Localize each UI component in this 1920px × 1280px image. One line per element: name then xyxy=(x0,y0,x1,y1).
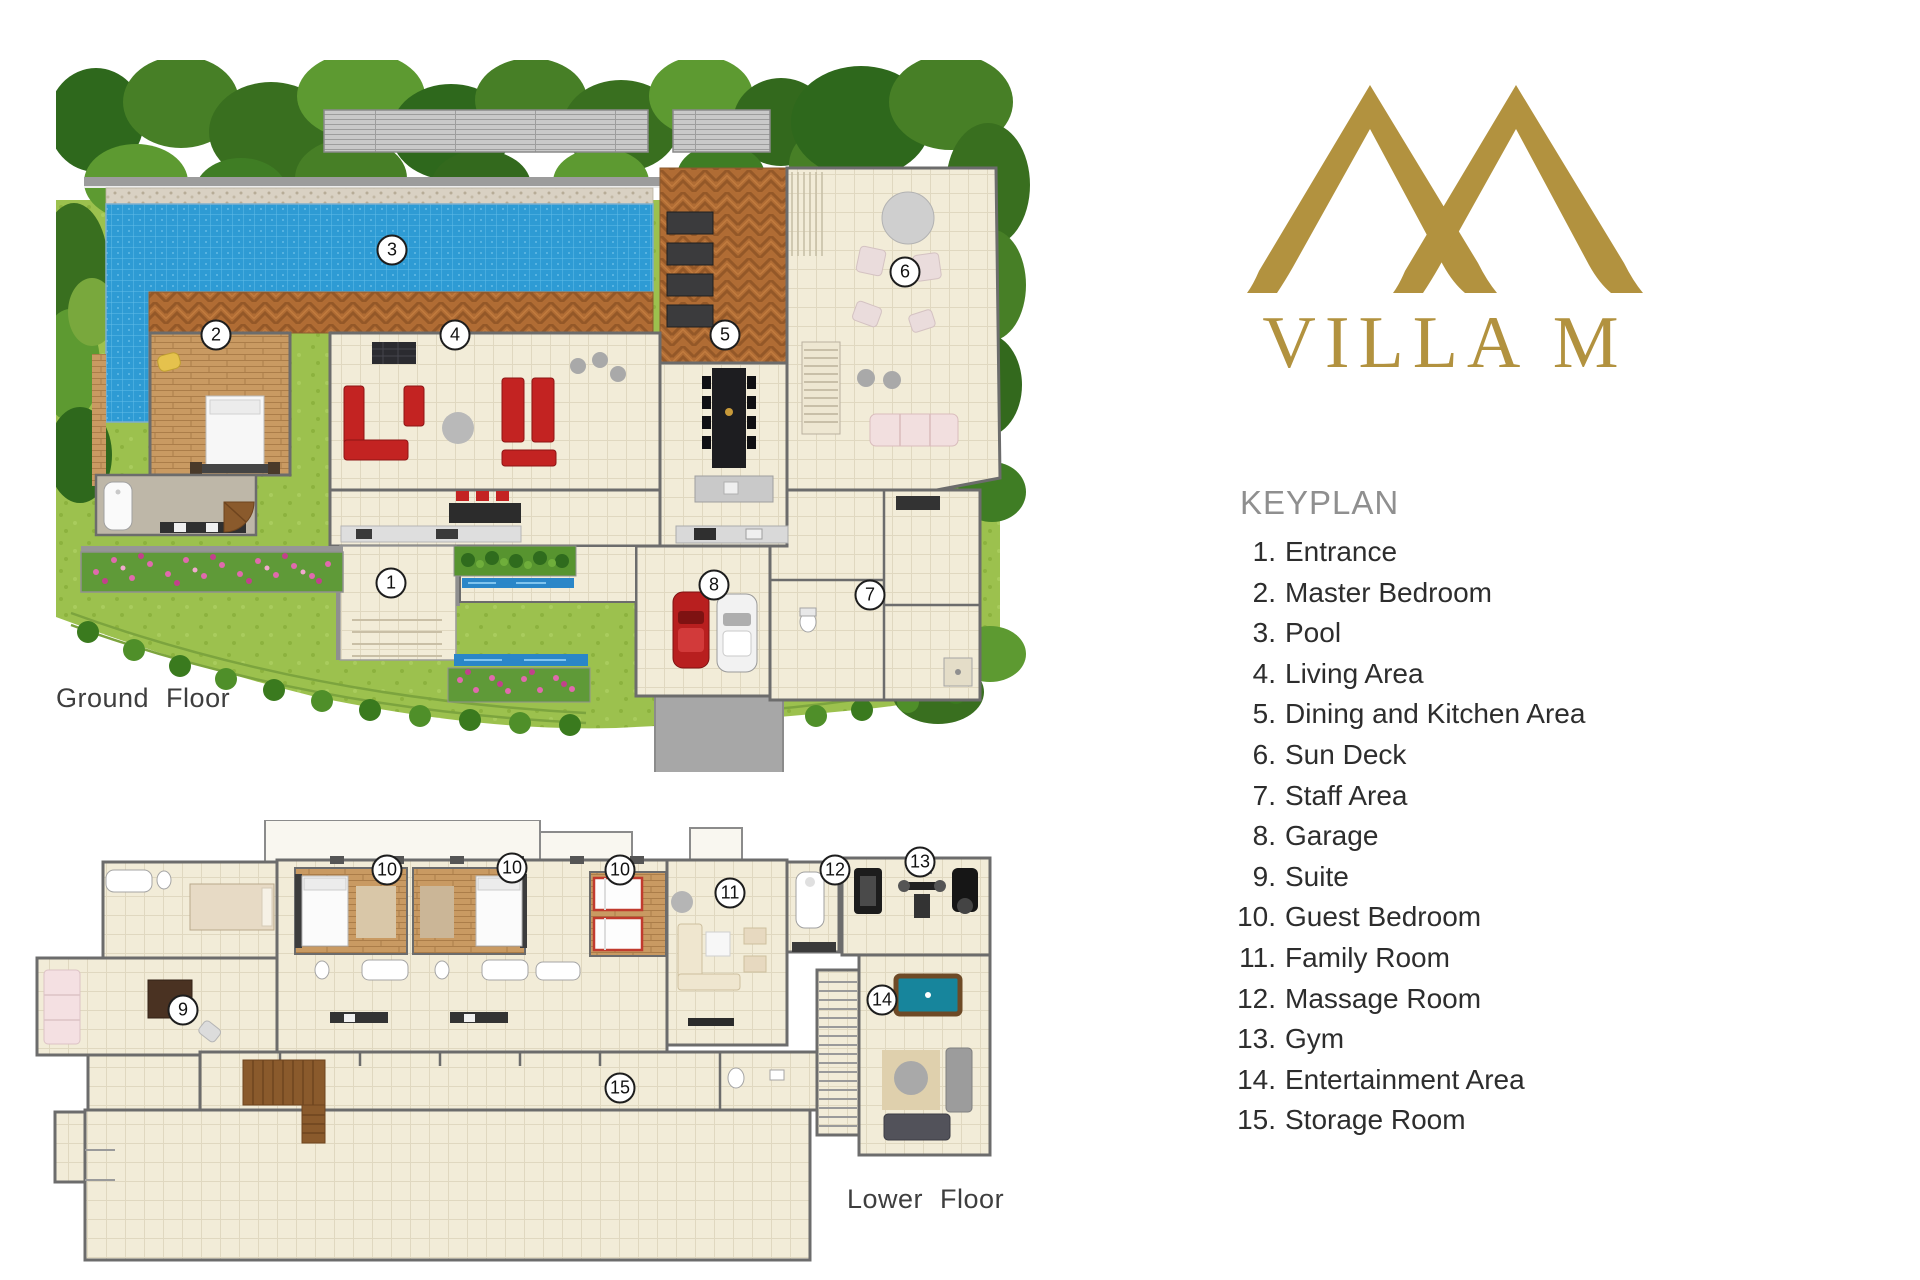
lower-floor-label: Lower Floor xyxy=(847,1184,1004,1215)
suite-sofa xyxy=(44,970,80,1044)
keyplan-item: 14.Entertainment Area xyxy=(1228,1060,1708,1101)
page: Ground Floor Lower Floor 123456789101010… xyxy=(0,0,1920,1280)
louvre-roof xyxy=(673,110,770,152)
keyplan-item-number: 2. xyxy=(1228,573,1276,614)
keyplan-item-label: Pool xyxy=(1285,613,1341,654)
room-marker-3: 3 xyxy=(377,235,408,266)
room-marker-10: 10 xyxy=(497,853,528,884)
keyplan-item: 5.Dining and Kitchen Area xyxy=(1228,694,1708,735)
keyplan: KEYPLAN 1.Entrance2.Master Bedroom3.Pool… xyxy=(1228,484,1708,1141)
stairwell xyxy=(817,970,859,1135)
keyplan-item: 4.Living Area xyxy=(1228,654,1708,695)
red-car xyxy=(673,592,709,668)
keyplan-item: 10.Guest Bedroom xyxy=(1228,897,1708,938)
keyplan-item-number: 15. xyxy=(1228,1100,1276,1141)
keyplan-item-label: Suite xyxy=(1285,857,1349,898)
pebble-border xyxy=(106,188,653,204)
room-marker-7: 7 xyxy=(855,580,886,611)
keyplan-item: 11.Family Room xyxy=(1228,938,1708,979)
keyplan-item: 8.Garage xyxy=(1228,816,1708,857)
keyplan-item-label: Guest Bedroom xyxy=(1285,897,1481,938)
room-marker-15: 15 xyxy=(605,1073,636,1104)
room-marker-6: 6 xyxy=(890,257,921,288)
white-car xyxy=(717,594,757,672)
keyplan-item-label: Sun Deck xyxy=(1285,735,1406,776)
keyplan-item-number: 10. xyxy=(1228,897,1276,938)
keyplan-item-label: Storage Room xyxy=(1285,1100,1466,1141)
room-marker-8: 8 xyxy=(699,570,730,601)
outdoor-sofa xyxy=(870,414,958,446)
suite-bed xyxy=(190,884,274,930)
keyplan-item-number: 4. xyxy=(1228,654,1276,695)
keyplan-item: 13.Gym xyxy=(1228,1019,1708,1060)
dining-table xyxy=(712,368,746,468)
keyplan-item-number: 13. xyxy=(1228,1019,1276,1060)
keyplan-item-label: Entrance xyxy=(1285,532,1397,573)
keyplan-item: 7.Staff Area xyxy=(1228,776,1708,817)
room-marker-14: 14 xyxy=(867,985,898,1016)
room-marker-10: 10 xyxy=(372,855,403,886)
ground-floor-label: Ground Floor xyxy=(56,683,230,714)
keyplan-item: 2.Master Bedroom xyxy=(1228,573,1708,614)
villa-m-monogram-icon xyxy=(1247,85,1643,298)
keyplan-item-number: 14. xyxy=(1228,1060,1276,1101)
ground-floor-art xyxy=(56,60,1031,772)
room-marker-13: 13 xyxy=(905,847,936,878)
room-marker-2: 2 xyxy=(201,320,232,351)
keyplan-list: 1.Entrance2.Master Bedroom3.Pool4.Living… xyxy=(1228,532,1708,1141)
room-marker-4: 4 xyxy=(440,320,471,351)
keyplan-item: 3.Pool xyxy=(1228,613,1708,654)
keyplan-item-label: Garage xyxy=(1285,816,1378,857)
room-marker-11: 11 xyxy=(715,878,746,909)
keyplan-item: 9.Suite xyxy=(1228,857,1708,898)
room-marker-10: 10 xyxy=(605,855,636,886)
keyplan-item-label: Living Area xyxy=(1285,654,1424,695)
keyplan-item-label: Family Room xyxy=(1285,938,1450,979)
keyplan-item: 12.Massage Room xyxy=(1228,979,1708,1020)
entrance-walkway xyxy=(340,546,456,660)
brand: VILLA M xyxy=(1225,85,1665,380)
keyplan-item-number: 9. xyxy=(1228,857,1276,898)
room-marker-5: 5 xyxy=(710,320,741,351)
keyplan-item: 1.Entrance xyxy=(1228,532,1708,573)
keyplan-item-label: Dining and Kitchen Area xyxy=(1285,694,1585,735)
keyplan-item: 15.Storage Room xyxy=(1228,1100,1708,1141)
room-marker-9: 9 xyxy=(168,995,199,1026)
brand-name: VILLA M xyxy=(1225,306,1665,380)
driveway xyxy=(655,690,783,772)
keyplan-item-number: 7. xyxy=(1228,776,1276,817)
keyplan-item-label: Gym xyxy=(1285,1019,1344,1060)
keyplan-item-label: Master Bedroom xyxy=(1285,573,1492,614)
keyplan-item-label: Massage Room xyxy=(1285,979,1481,1020)
louvre-roof xyxy=(324,110,648,152)
basement-hall xyxy=(85,1110,810,1260)
room-marker-1: 1 xyxy=(376,568,407,599)
keyplan-title: KEYPLAN xyxy=(1240,484,1708,522)
keyplan-item: 6.Sun Deck xyxy=(1228,735,1708,776)
keyplan-item-number: 3. xyxy=(1228,613,1276,654)
keyplan-item-number: 1. xyxy=(1228,532,1276,573)
keyplan-item-number: 12. xyxy=(1228,979,1276,1020)
keyplan-item-number: 11. xyxy=(1228,938,1276,979)
keyplan-item-label: Staff Area xyxy=(1285,776,1407,817)
keyplan-item-label: Entertainment Area xyxy=(1285,1060,1525,1101)
room-marker-12: 12 xyxy=(820,855,851,886)
keyplan-item-number: 5. xyxy=(1228,694,1276,735)
keyplan-item-number: 8. xyxy=(1228,816,1276,857)
deck-table xyxy=(882,192,934,244)
ground-floor-plan xyxy=(56,60,1031,772)
keyplan-item-number: 6. xyxy=(1228,735,1276,776)
